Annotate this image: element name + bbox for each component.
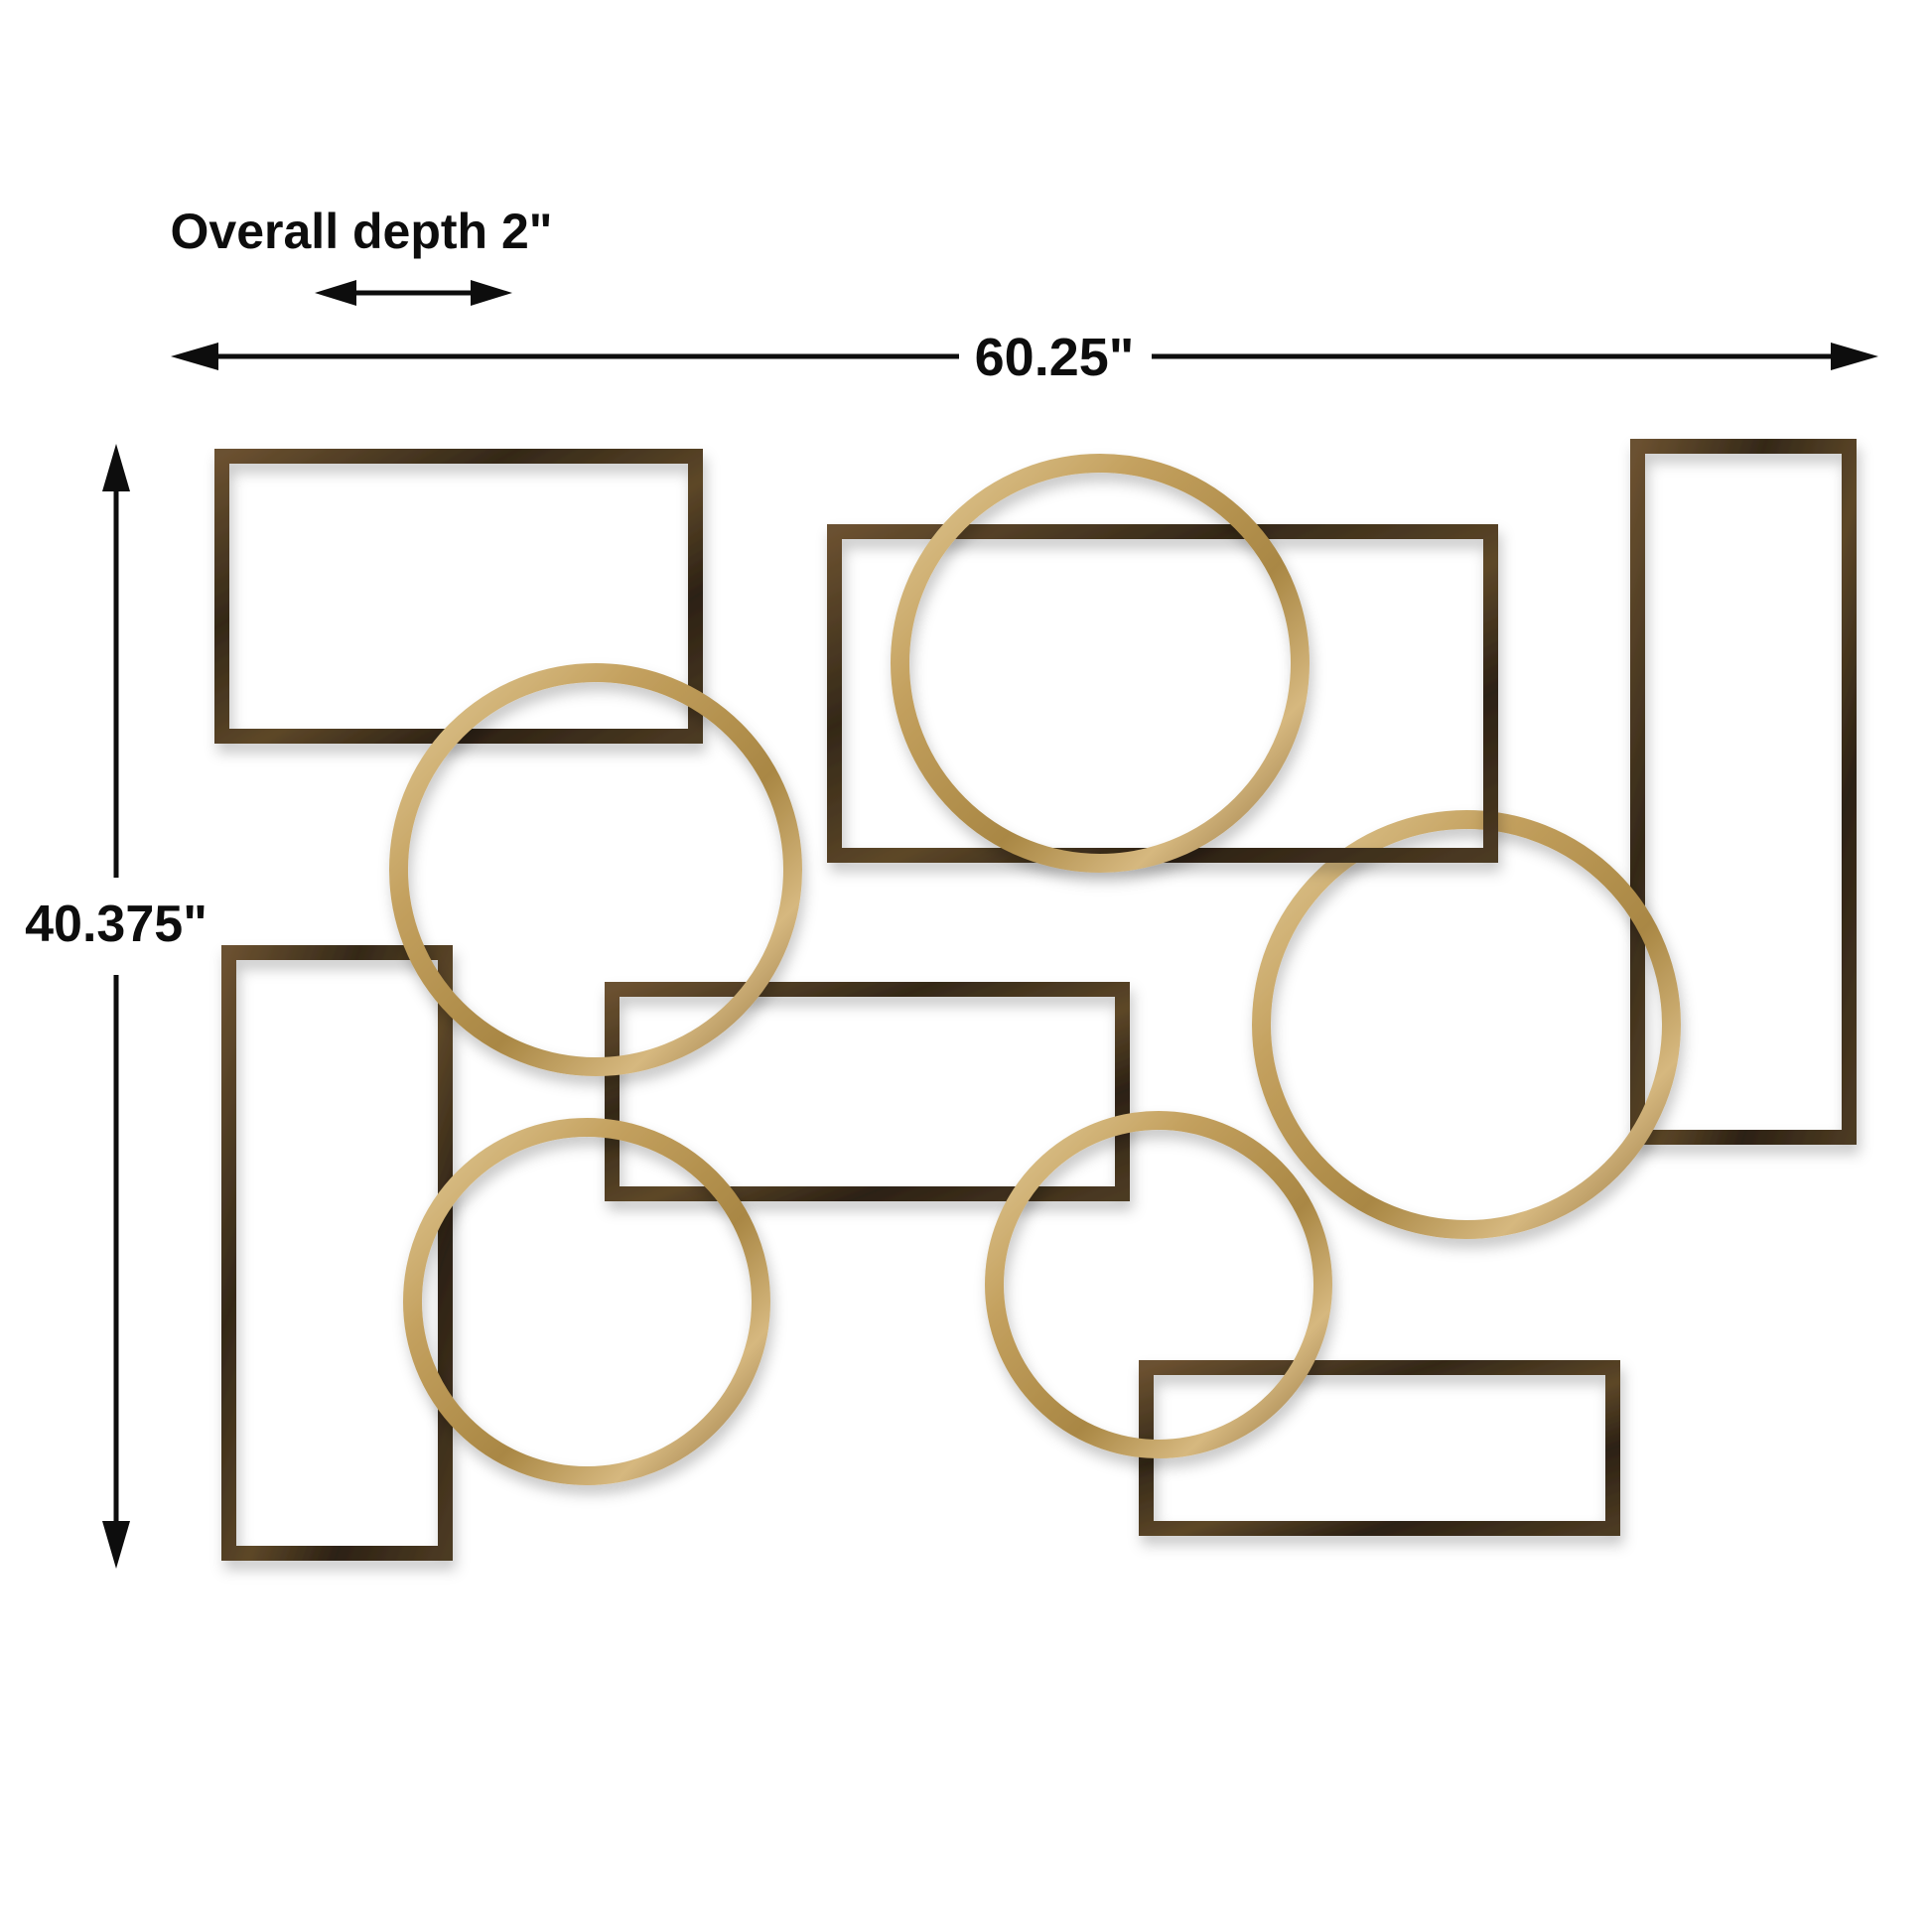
height-annotation: 40.375"	[25, 444, 207, 1569]
width-arrow-right-head-icon	[1831, 343, 1878, 370]
product-dimension-diagram: Overall depth 2" 60.25" 40.375"	[0, 0, 1932, 1932]
diagram-svg: Overall depth 2" 60.25" 40.375"	[0, 0, 1932, 1932]
width-arrow-left-head-icon	[171, 343, 218, 370]
height-arrow-bottom-head-icon	[102, 1521, 130, 1569]
depth-annotation: Overall depth 2"	[171, 204, 553, 306]
depth-label: Overall depth 2"	[171, 204, 553, 259]
depth-arrow-left-head-icon	[315, 280, 356, 306]
gold-ring-bottom-left	[413, 1128, 761, 1476]
height-arrow-top-head-icon	[102, 444, 130, 491]
artwork-shapes	[222, 447, 1850, 1554]
gold-ring-right	[1262, 820, 1672, 1230]
height-dimension-label: 40.375"	[25, 896, 207, 953]
width-annotation: 60.25"	[171, 328, 1878, 387]
gold-ring-top-center	[900, 464, 1301, 864]
width-dimension-label: 60.25"	[975, 328, 1135, 387]
bronze-rectangle-top-left	[222, 457, 696, 737]
bronze-rectangle-top-center	[835, 532, 1491, 856]
depth-arrow-right-head-icon	[471, 280, 512, 306]
gold-ring-bottom-center	[995, 1121, 1323, 1449]
